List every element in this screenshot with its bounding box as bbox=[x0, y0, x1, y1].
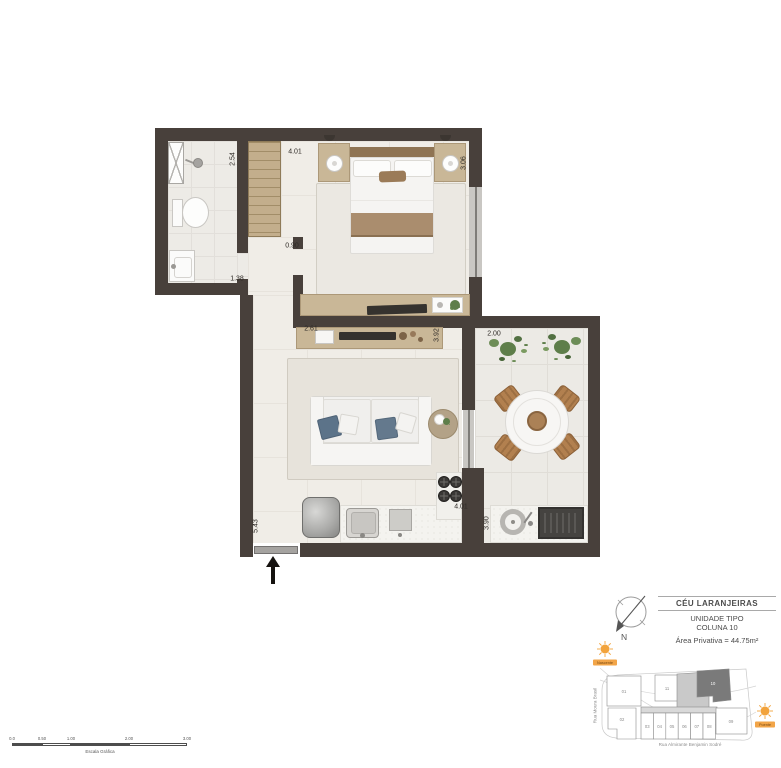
floorplan-canvas: 2.54 4.01 3.06 0.90 1.38 2.61 3.92 2.00 … bbox=[0, 0, 781, 768]
balcony-slider-door bbox=[463, 410, 474, 468]
scale-seg-3 bbox=[71, 743, 129, 746]
unit-07: 07 bbox=[694, 724, 699, 729]
unit-04: 04 bbox=[657, 724, 662, 729]
unit-03: 03 bbox=[645, 724, 650, 729]
scale-caption: Escala Gráfica bbox=[30, 749, 170, 754]
scale-tick-3: 2.00 bbox=[125, 736, 133, 741]
shower-head bbox=[193, 158, 203, 168]
kitchen-sink-basin bbox=[351, 512, 376, 534]
sideboard-decor-3 bbox=[418, 337, 423, 342]
bedroom-desk-tray bbox=[432, 297, 463, 313]
unit-01: 01 bbox=[622, 689, 627, 694]
bedside-lamp-left bbox=[326, 155, 343, 172]
bathroom-sink bbox=[169, 250, 195, 282]
bed-blanket bbox=[351, 213, 433, 237]
site-key-plan: 01 11 10 02 03 04 05 06 07 08 09 bbox=[598, 668, 758, 746]
entry-arrow-icon bbox=[265, 556, 281, 586]
dim-closet-side: 2.54 bbox=[230, 152, 237, 166]
balcony-plant-right bbox=[554, 340, 570, 354]
bedroom-desk bbox=[300, 294, 470, 316]
balcony-faucet-base bbox=[528, 521, 533, 526]
shower-box bbox=[168, 142, 184, 184]
dim-bedroom-right: 3.06 bbox=[461, 156, 468, 170]
burner-4 bbox=[450, 490, 462, 502]
sun-icon-west: Poente bbox=[748, 702, 781, 732]
balcony-plant-left bbox=[500, 342, 516, 356]
wall-top bbox=[155, 128, 482, 141]
scale-tick-4: 3.00 bbox=[183, 736, 191, 741]
unit-02: 02 bbox=[620, 717, 625, 722]
unit-type-label: UNIDADE TIPO bbox=[658, 614, 776, 623]
scale-bar: 0.0 0.50 1.00 2.00 3.00 Escala Gráfica bbox=[10, 734, 200, 756]
dim-bedroom-top: 4.01 bbox=[288, 149, 302, 156]
wall-living-left bbox=[240, 295, 253, 557]
entry-door bbox=[254, 546, 298, 554]
unit-05: 05 bbox=[670, 724, 675, 729]
grill-grate bbox=[544, 513, 578, 533]
dim-living-right: 3.92 bbox=[434, 328, 441, 342]
scale-tick-2: 1.00 bbox=[67, 736, 75, 741]
wall-bottom bbox=[300, 543, 600, 557]
burner-2 bbox=[450, 476, 462, 488]
unit-08: 08 bbox=[707, 724, 712, 729]
bedside-lamp-right bbox=[442, 155, 459, 172]
scale-tick-1: 0.50 bbox=[38, 736, 46, 741]
sun-icon-east: Nascente bbox=[588, 640, 622, 670]
wall-bath-right bbox=[237, 141, 248, 253]
dim-balcony-right: 3.90 bbox=[484, 516, 491, 530]
scale-tick-0: 0.0 bbox=[9, 736, 15, 741]
washer-cylinder bbox=[302, 497, 340, 538]
wall-balcony-right bbox=[588, 318, 600, 557]
bathroom-sink-faucet bbox=[171, 264, 176, 269]
north-compass-icon: N bbox=[604, 592, 656, 644]
prep-basin bbox=[389, 509, 412, 531]
bathroom-sink-basin bbox=[174, 257, 192, 278]
toilet-bowl bbox=[182, 197, 209, 228]
burner-1 bbox=[438, 476, 450, 488]
wardrobe bbox=[248, 141, 281, 237]
private-area-label: Área Privativa = 44.75m² bbox=[658, 636, 776, 645]
kitchen-sink bbox=[346, 508, 379, 538]
project-title: CÉU LARANJEIRAS bbox=[658, 599, 776, 608]
grill bbox=[538, 507, 584, 539]
dim-sideboard-width: 2.61 bbox=[304, 326, 318, 333]
dining-table bbox=[505, 390, 569, 454]
dim-hall-width: 0.90 bbox=[285, 243, 299, 250]
sun-east-label: Nascente bbox=[597, 661, 613, 665]
unit-06: 06 bbox=[682, 724, 687, 729]
balcony-bowl-drain bbox=[511, 520, 515, 524]
sideboard-decor-2 bbox=[410, 331, 416, 337]
unit-10: 10 bbox=[711, 681, 716, 686]
wall-bath-left bbox=[155, 128, 168, 295]
dim-kitchen-width: 4.01 bbox=[454, 504, 468, 511]
kitchen-sink-faucet bbox=[360, 533, 365, 538]
bed-duvet-fold bbox=[351, 200, 433, 201]
tray-item bbox=[437, 302, 443, 308]
sun-west-label: Poente bbox=[759, 723, 771, 727]
bed-headboard bbox=[350, 147, 434, 157]
wall-partition-upper bbox=[462, 328, 475, 410]
title-rule-bottom bbox=[658, 610, 776, 611]
sofa-pillow-white-1 bbox=[337, 413, 359, 435]
street-label-bottom: Rua Almirante Benjamin Sodré bbox=[620, 742, 760, 747]
sofa-back bbox=[323, 443, 419, 465]
sofa bbox=[310, 396, 432, 466]
tray-plant bbox=[450, 300, 460, 310]
burner-3 bbox=[438, 490, 450, 502]
side-table-plant bbox=[443, 418, 450, 425]
balcony-bowl-sink bbox=[500, 509, 526, 535]
entry-arrow-stem bbox=[271, 565, 275, 584]
scale-seg-4 bbox=[129, 743, 187, 746]
bed-accent-pillow bbox=[379, 171, 406, 183]
scale-seg-1 bbox=[12, 743, 42, 746]
title-rule-top bbox=[658, 596, 776, 597]
sideboard-decor-1 bbox=[399, 332, 407, 340]
unit-11: 11 bbox=[665, 686, 670, 691]
wall-bath-bottom bbox=[155, 283, 248, 295]
prep-basin-faucet bbox=[398, 533, 402, 537]
dim-living-left: 5.43 bbox=[253, 519, 260, 533]
unit-column-label: COLUNA 10 bbox=[658, 623, 776, 632]
dim-bathroom-width: 1.38 bbox=[230, 276, 244, 283]
street-label-left: Rua Moura Brasil bbox=[593, 671, 598, 741]
bed bbox=[350, 157, 434, 254]
table-centerpiece bbox=[527, 411, 547, 431]
dim-balcony-top: 2.00 bbox=[487, 331, 501, 338]
bedroom-desk-tv bbox=[367, 304, 427, 315]
side-table bbox=[428, 409, 458, 439]
bedroom-window bbox=[469, 187, 482, 277]
scale-seg-2 bbox=[42, 743, 71, 746]
sideboard-tv bbox=[339, 332, 396, 340]
unit-09: 09 bbox=[729, 719, 734, 724]
